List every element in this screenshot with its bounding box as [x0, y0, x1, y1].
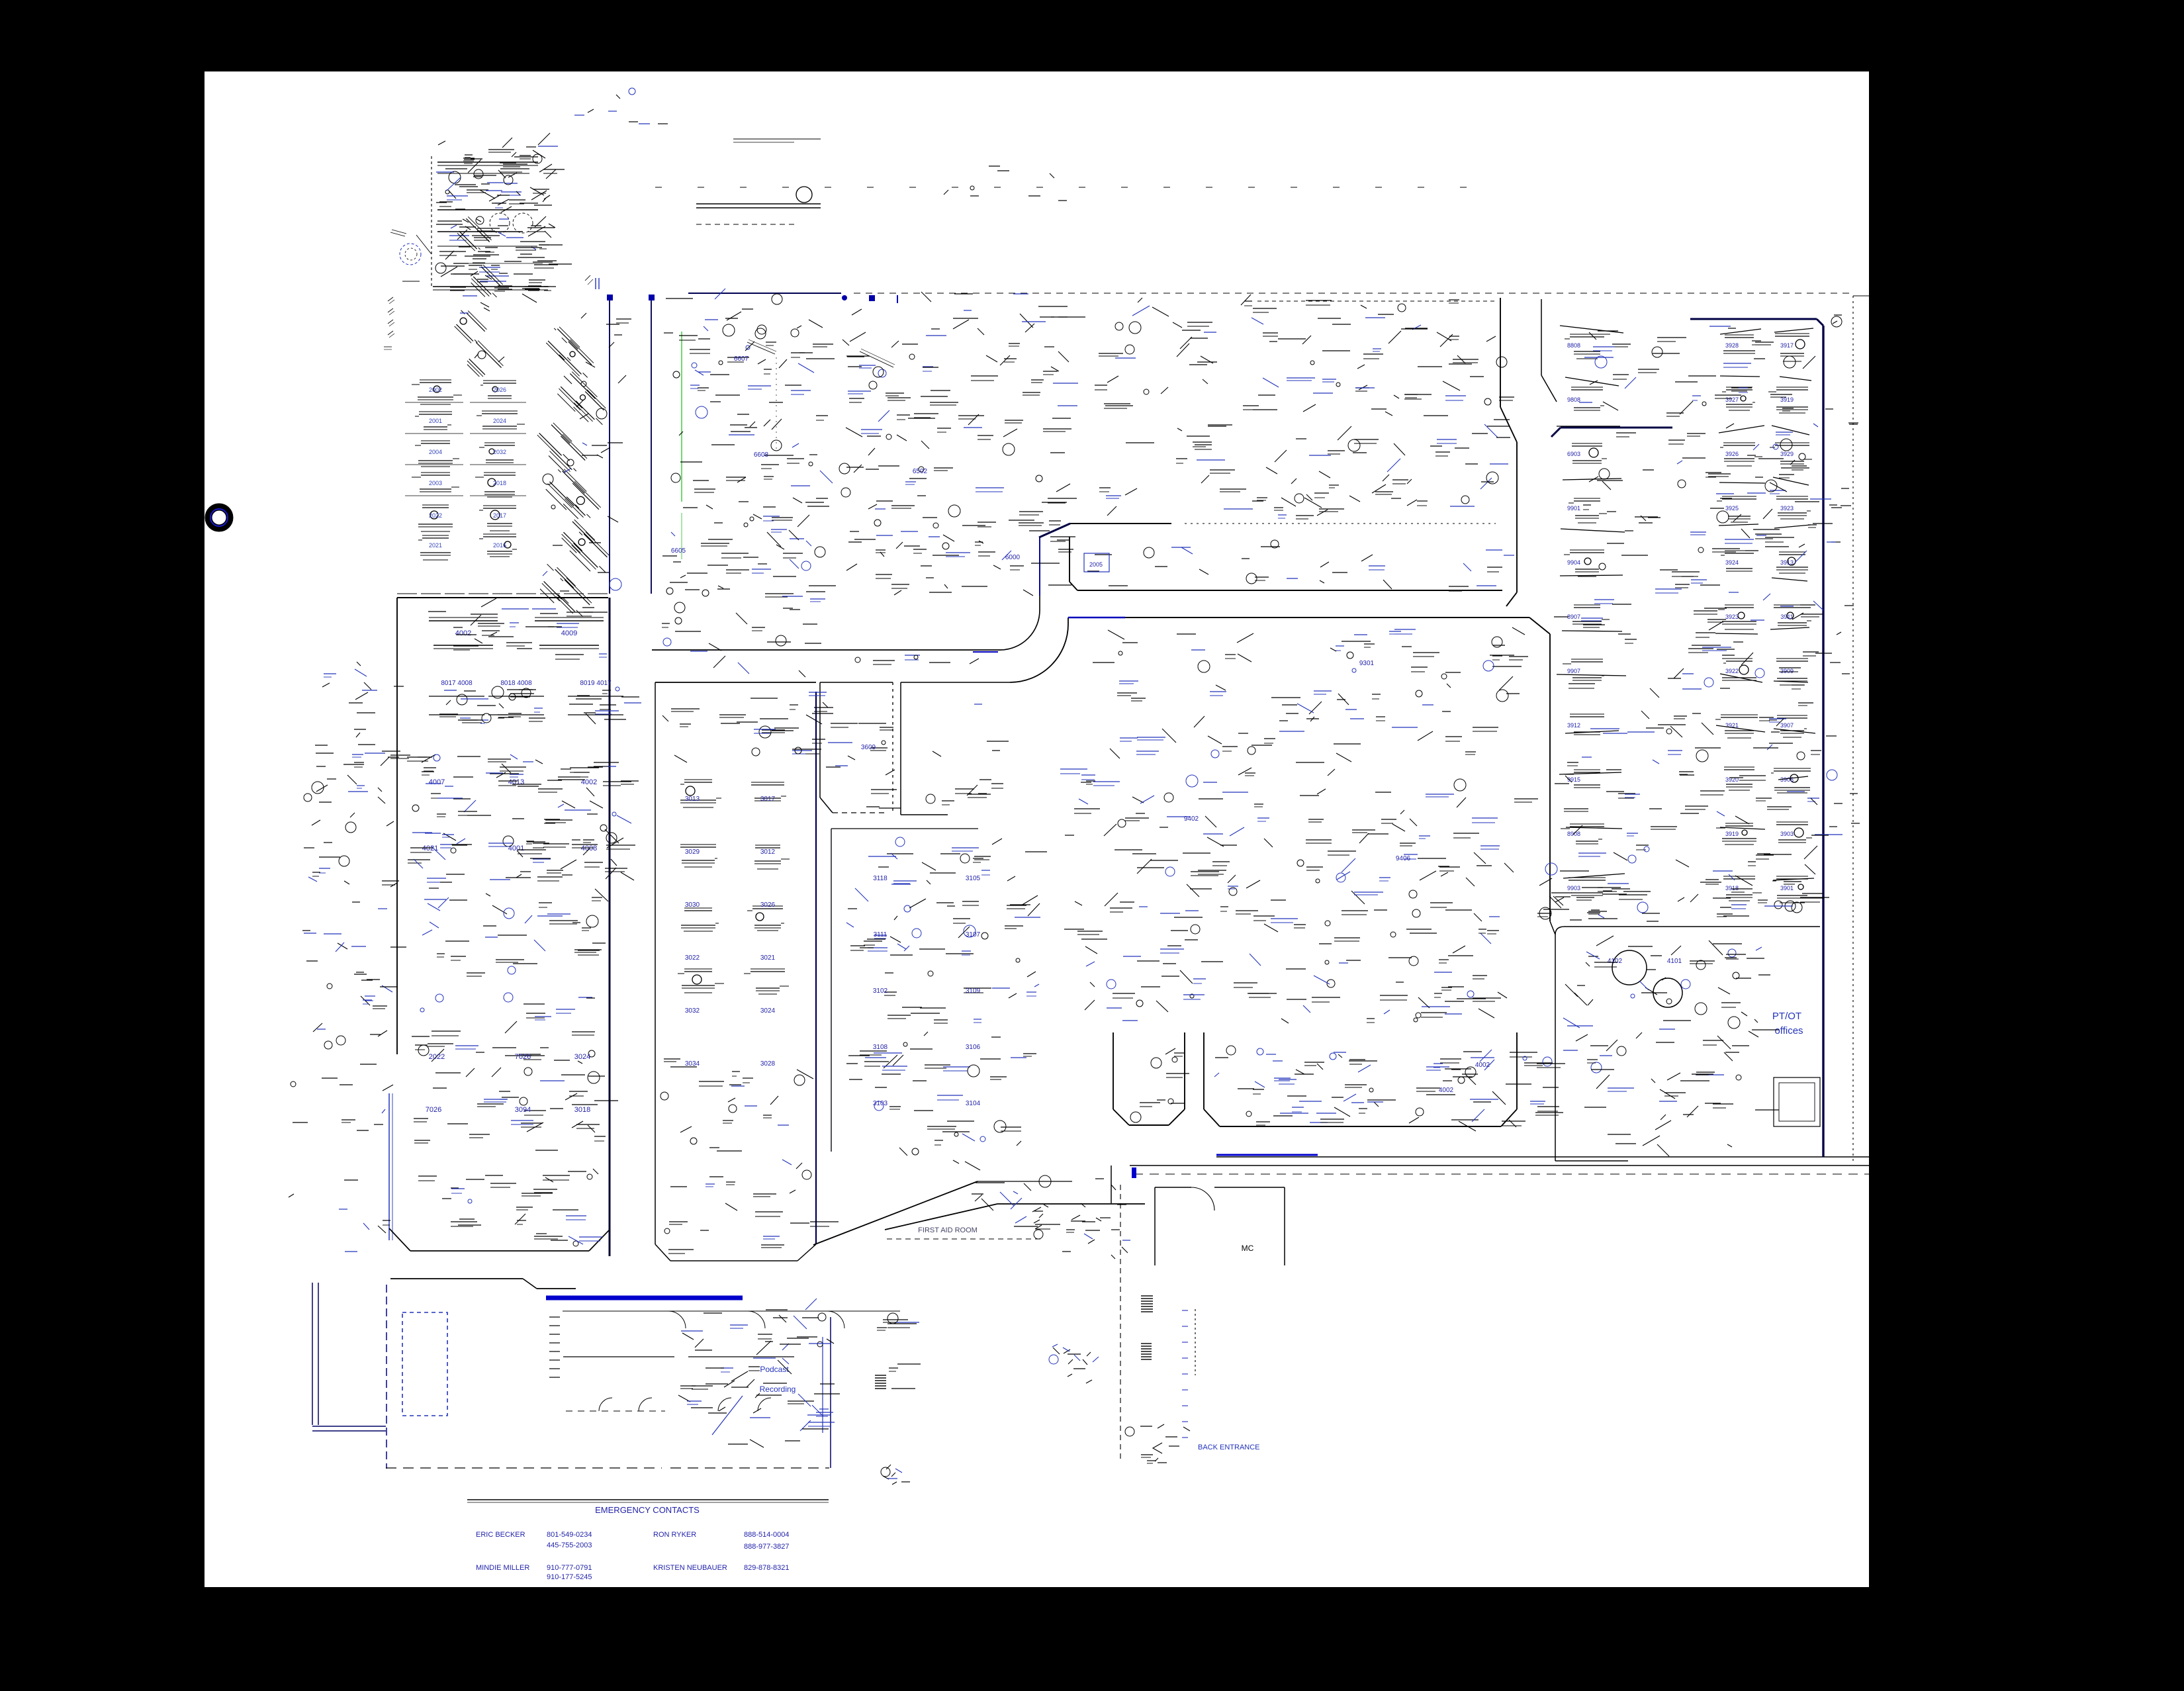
- svg-text:9903: 9903: [1567, 885, 1580, 891]
- svg-text:2026: 2026: [493, 387, 506, 393]
- svg-text:3034: 3034: [685, 1060, 700, 1068]
- svg-text:2032: 2032: [493, 449, 506, 455]
- svg-text:3913: 3913: [1780, 559, 1794, 566]
- svg-text:4002: 4002: [1439, 1087, 1454, 1094]
- svg-text:3012: 3012: [760, 848, 776, 856]
- svg-text:6607: 6607: [734, 355, 749, 363]
- svg-text:9904: 9904: [1567, 559, 1580, 566]
- svg-text:2024: 2024: [493, 418, 506, 424]
- svg-text:3024: 3024: [574, 1053, 590, 1061]
- svg-text:3111: 3111: [874, 931, 887, 938]
- svg-text:MC: MC: [1242, 1244, 1254, 1253]
- svg-text:2017: 2017: [493, 512, 506, 519]
- svg-text:RON RYKER: RON RYKER: [653, 1531, 696, 1539]
- svg-text:801-549-0234: 801-549-0234: [547, 1531, 592, 1539]
- svg-text:8019 4017: 8019 4017: [580, 680, 612, 687]
- svg-text:3029: 3029: [685, 848, 700, 856]
- svg-text:3021: 3021: [760, 954, 776, 962]
- svg-text:9901: 9901: [1567, 505, 1580, 512]
- svg-text:2018: 2018: [493, 480, 506, 486]
- svg-text:6605: 6605: [671, 547, 686, 555]
- svg-text:3924: 3924: [1725, 559, 1739, 566]
- svg-text:3917: 3917: [1780, 342, 1794, 349]
- svg-text:4102: 4102: [1608, 958, 1623, 965]
- svg-text:2022: 2022: [429, 1053, 445, 1061]
- svg-text:3104: 3104: [966, 1100, 981, 1107]
- svg-text:4002: 4002: [1475, 1062, 1490, 1069]
- svg-text:3018: 3018: [574, 1106, 590, 1114]
- svg-text:3918: 3918: [1725, 885, 1739, 891]
- svg-text:829-878-8321: 829-878-8321: [744, 1564, 790, 1572]
- svg-text:3923: 3923: [1725, 614, 1739, 620]
- svg-text:445-755-2003: 445-755-2003: [547, 1541, 592, 1549]
- svg-text:3102: 3102: [873, 987, 888, 995]
- svg-text:9301: 9301: [1359, 660, 1375, 667]
- svg-text:KRISTEN NEUBAUER: KRISTEN NEUBAUER: [653, 1564, 727, 1572]
- svg-text:8018 4008: 8018 4008: [500, 680, 532, 687]
- svg-text:ERIC BECKER: ERIC BECKER: [476, 1531, 525, 1539]
- svg-text:3922: 3922: [1725, 668, 1739, 674]
- svg-text:4009: 4009: [561, 629, 577, 637]
- svg-text:3929: 3929: [1780, 451, 1794, 457]
- svg-text:3030: 3030: [685, 901, 700, 909]
- svg-text:3911: 3911: [1780, 614, 1793, 620]
- svg-text:3903: 3903: [1780, 831, 1794, 837]
- svg-text:3912: 3912: [1567, 722, 1580, 729]
- svg-text:PT/OT: PT/OT: [1772, 1011, 1801, 1022]
- svg-text:3106: 3106: [966, 1044, 981, 1051]
- svg-text:3927: 3927: [1725, 396, 1739, 403]
- svg-text:2016: 2016: [493, 542, 506, 549]
- svg-text:3118: 3118: [873, 875, 887, 882]
- svg-text:3103: 3103: [873, 1100, 888, 1107]
- svg-text:3032: 3032: [685, 1007, 700, 1015]
- svg-text:3017: 3017: [760, 796, 776, 803]
- svg-text:4021: 4021: [422, 845, 438, 852]
- svg-text:2022: 2022: [429, 512, 442, 519]
- svg-text:9406: 9406: [1396, 855, 1411, 862]
- svg-text:2021: 2021: [429, 542, 442, 549]
- svg-text:910-777-0791: 910-777-0791: [547, 1564, 592, 1572]
- svg-text:888-977-3827: 888-977-3827: [744, 1543, 790, 1551]
- svg-text:3013: 3013: [685, 796, 700, 803]
- svg-text:9402: 9402: [1184, 815, 1199, 823]
- svg-text:6000: 6000: [1005, 554, 1021, 561]
- svg-text:4002: 4002: [455, 629, 471, 637]
- svg-text:2003: 2003: [429, 480, 442, 486]
- svg-text:3919: 3919: [1725, 831, 1739, 837]
- svg-text:FIRST AID ROOM: FIRST AID ROOM: [918, 1226, 978, 1234]
- svg-text:offices: offices: [1774, 1025, 1803, 1036]
- svg-text:3105: 3105: [966, 875, 981, 882]
- svg-text:Recording: Recording: [760, 1385, 796, 1394]
- svg-text:3026: 3026: [760, 901, 776, 909]
- svg-text:4007: 4007: [429, 778, 445, 786]
- svg-text:3107: 3107: [966, 931, 981, 938]
- svg-text:910-177-5245: 910-177-5245: [547, 1573, 592, 1581]
- svg-text:3022: 3022: [685, 954, 700, 962]
- svg-text:4008: 4008: [581, 845, 597, 852]
- svg-text:6608: 6608: [754, 451, 769, 459]
- svg-text:3609: 3609: [861, 744, 876, 751]
- svg-text:3926: 3926: [1725, 451, 1739, 457]
- svg-text:9907: 9907: [1567, 668, 1580, 674]
- svg-text:8907: 8907: [1567, 614, 1580, 620]
- svg-text:2004: 2004: [429, 449, 442, 455]
- svg-text:888-514-0004: 888-514-0004: [744, 1531, 790, 1539]
- svg-text:3901: 3901: [1780, 885, 1794, 891]
- svg-text:3028: 3028: [760, 1060, 776, 1068]
- svg-text:3109: 3109: [966, 987, 981, 995]
- svg-text:6502: 6502: [913, 468, 928, 475]
- svg-text:2001: 2001: [429, 418, 442, 424]
- svg-text:3919: 3919: [1780, 396, 1794, 403]
- svg-text:EMERGENCY CONTACTS: EMERGENCY CONTACTS: [595, 1505, 700, 1515]
- svg-text:7026: 7026: [426, 1106, 441, 1114]
- svg-text:BACK ENTRANCE: BACK ENTRANCE: [1198, 1443, 1260, 1451]
- svg-text:3907: 3907: [1780, 722, 1794, 729]
- svg-text:3928: 3928: [1725, 342, 1739, 349]
- svg-text:2005: 2005: [1089, 561, 1103, 568]
- svg-text:3923: 3923: [1780, 505, 1794, 512]
- svg-text:3909: 3909: [1780, 668, 1794, 674]
- svg-text:4013: 4013: [508, 778, 524, 786]
- svg-text:MINDIE MILLER: MINDIE MILLER: [476, 1564, 529, 1572]
- svg-text:7026: 7026: [515, 1053, 531, 1061]
- svg-text:8017 4008: 8017 4008: [441, 680, 473, 687]
- svg-text:8808: 8808: [1567, 342, 1580, 349]
- svg-text:2002: 2002: [429, 387, 442, 393]
- svg-text:3094: 3094: [515, 1106, 531, 1114]
- svg-text:3024: 3024: [760, 1007, 776, 1015]
- svg-text:4101: 4101: [1667, 958, 1682, 965]
- svg-text:6903: 6903: [1567, 451, 1580, 457]
- svg-text:9808: 9808: [1567, 396, 1580, 403]
- svg-text:3108: 3108: [873, 1044, 888, 1051]
- svg-text:3925: 3925: [1725, 505, 1739, 512]
- svg-text:Podcast: Podcast: [760, 1365, 789, 1374]
